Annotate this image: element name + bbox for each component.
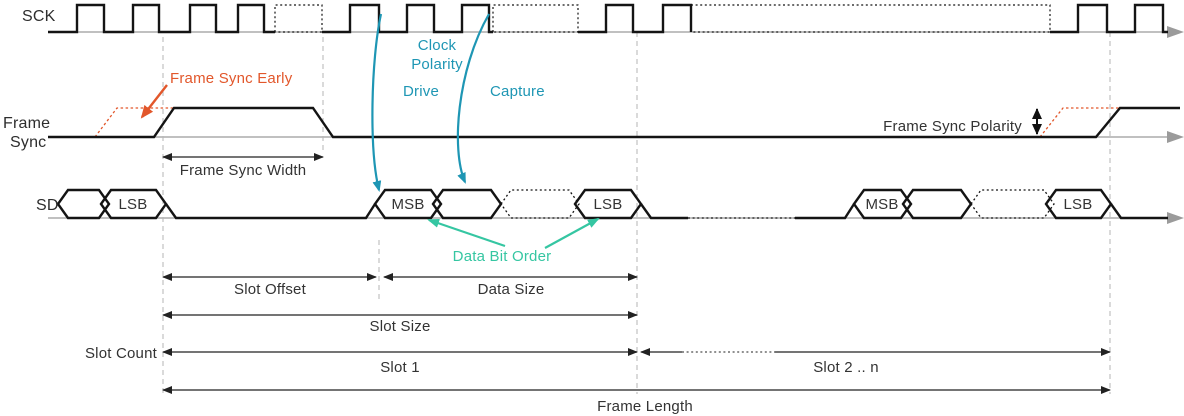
frame-length-label: Frame Length	[597, 398, 693, 415]
frame-sync-early-label: Frame Sync Early	[170, 70, 293, 87]
sck-skipped-cycles-box-2	[493, 5, 578, 32]
sd-cell-mid-unlabeled	[433, 190, 501, 218]
frame-sync-early-dotted-pulse	[95, 108, 174, 137]
sd-axis-arrow-icon	[1167, 212, 1184, 224]
frame-sync-axis-arrow-icon	[1167, 131, 1184, 143]
drive-label: Drive	[403, 83, 439, 100]
slot-2n-label: Slot 2 .. n	[813, 359, 879, 376]
frame-sync-label-line1: Frame	[3, 115, 50, 132]
sd-idle-segment-1	[166, 204, 375, 218]
sd-cell-label-right-msb: MSB	[865, 196, 898, 213]
sd-idle-segment-3	[795, 204, 854, 218]
frame-sync-width-label: Frame Sync Width	[180, 162, 307, 179]
sd-cell-label-left-lsb: LSB	[119, 196, 148, 213]
timing-diagram: LSB MSB LSB MSB LSB SCK Frame Sync SD Fr…	[0, 0, 1184, 416]
sck-waveform-segment-2	[322, 5, 493, 32]
sd-idle-segment-2	[641, 204, 688, 218]
data-bit-order-arrow-lsb	[545, 219, 598, 248]
slot-size-label: Slot Size	[370, 318, 431, 335]
sck-waveform-segment-1	[48, 5, 275, 32]
sck-waveform-segment-4	[1050, 5, 1168, 32]
slot-offset-label: Slot Offset	[234, 281, 307, 298]
sd-cell-right-dotted	[971, 190, 1054, 218]
drive-arrow	[372, 14, 381, 190]
sd-cell-label-mid-msb: MSB	[391, 196, 424, 213]
sd-cell-right-unlabeled	[903, 190, 971, 218]
data-bit-order-arrow-msb	[429, 220, 505, 246]
sd-cell-mid-dotted	[501, 190, 579, 218]
sck-waveform-segment-3	[578, 5, 691, 32]
capture-label: Capture	[490, 83, 545, 100]
sck-skipped-cycles-box-1	[275, 5, 322, 32]
sck-label: SCK	[22, 8, 56, 25]
sd-label: SD	[36, 197, 59, 214]
sck-skipped-cycles-box-3	[691, 5, 1050, 32]
clock-polarity-label-line2: Polarity	[411, 56, 463, 73]
sd-cell-label-mid-lsb: LSB	[594, 196, 623, 213]
timing-diagram-canvas: LSB MSB LSB MSB LSB SCK Frame Sync SD Fr…	[0, 0, 1184, 416]
sck-axis-arrow-icon	[1167, 26, 1184, 38]
frame-sync-polarity-label: Frame Sync Polarity	[883, 118, 1022, 135]
capture-arrow	[458, 14, 489, 182]
slot-count-label: Slot Count	[85, 345, 158, 362]
slot-1-label: Slot 1	[380, 359, 420, 376]
frame-sync-label-line2: Sync	[10, 134, 46, 151]
sd-cell-label-right-lsb: LSB	[1064, 196, 1093, 213]
clock-polarity-label-line1: Clock	[418, 37, 457, 54]
sd-idle-segment-4	[1111, 204, 1168, 218]
data-size-label: Data Size	[478, 281, 545, 298]
data-bit-order-label: Data Bit Order	[453, 248, 552, 265]
